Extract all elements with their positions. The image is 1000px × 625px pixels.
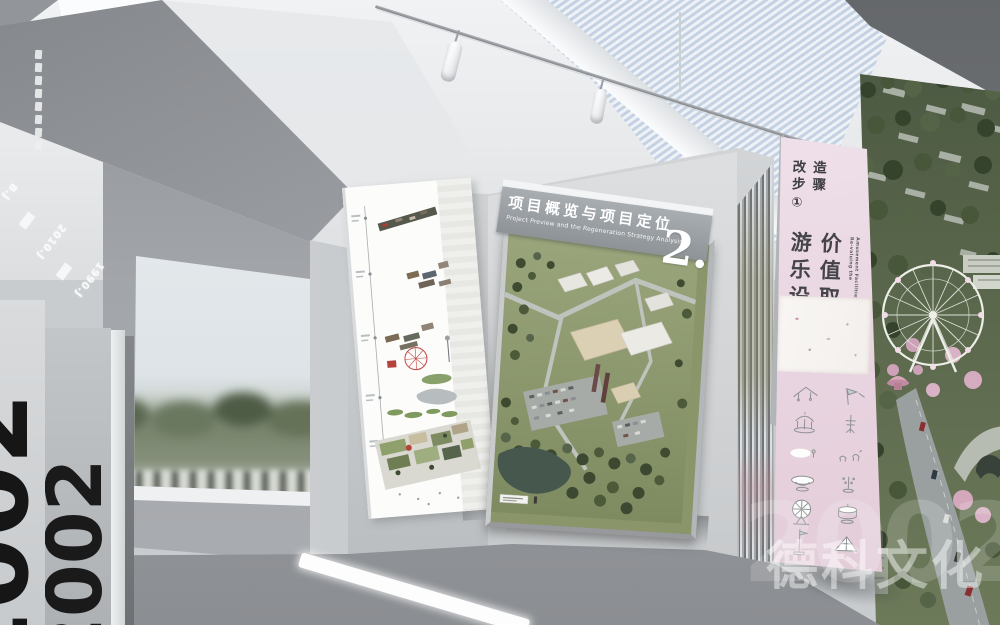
banner-step-block: 改造 步骤 ①: [791, 159, 834, 211]
banner-site-map-image: [777, 295, 872, 374]
corner-shadow-gap: [125, 336, 134, 625]
poster-ferris-wheel: [385, 335, 452, 372]
suspension-rod: [679, 12, 681, 92]
green-patches: [387, 404, 458, 422]
kite-banner-icon: [836, 384, 867, 407]
green-lawn-blob: [421, 373, 452, 385]
observation-tower-icon: [835, 413, 866, 438]
site-plan-thumbnail: [375, 420, 482, 490]
banner-step-bottom: 步骤: [792, 176, 834, 194]
aerial-fragment-2: [406, 261, 453, 294]
banner-step-number: ①: [791, 195, 832, 211]
lake-silhouette: [416, 387, 457, 406]
swing-ride-icon: [790, 382, 821, 405]
corner-edge-highlight: [111, 330, 125, 625]
corner-number-side: 2002: [45, 410, 111, 625]
watermark-brand: 德科文化: [766, 541, 986, 593]
exhibition-hall-render: B.J 2010.J 1990.J: [0, 0, 1000, 625]
carousel-icon: [789, 411, 820, 436]
aerial-fragment-1: [378, 207, 438, 232]
banner-step-top: 改造: [792, 159, 834, 177]
splash-pond-icon: [788, 442, 819, 463]
corner-wall-front: 2002: [0, 300, 45, 625]
animal-figures-icon: [834, 444, 865, 465]
corner-wall-side: 2002: [45, 328, 111, 625]
corner-number-front: 2002: [0, 352, 45, 625]
section-number: 2.: [659, 223, 713, 275]
timeline-poster: [342, 178, 497, 519]
column-vertical-signage: [33, 46, 43, 166]
scatter-dots: [398, 488, 459, 507]
poster-graphics: [345, 178, 497, 519]
